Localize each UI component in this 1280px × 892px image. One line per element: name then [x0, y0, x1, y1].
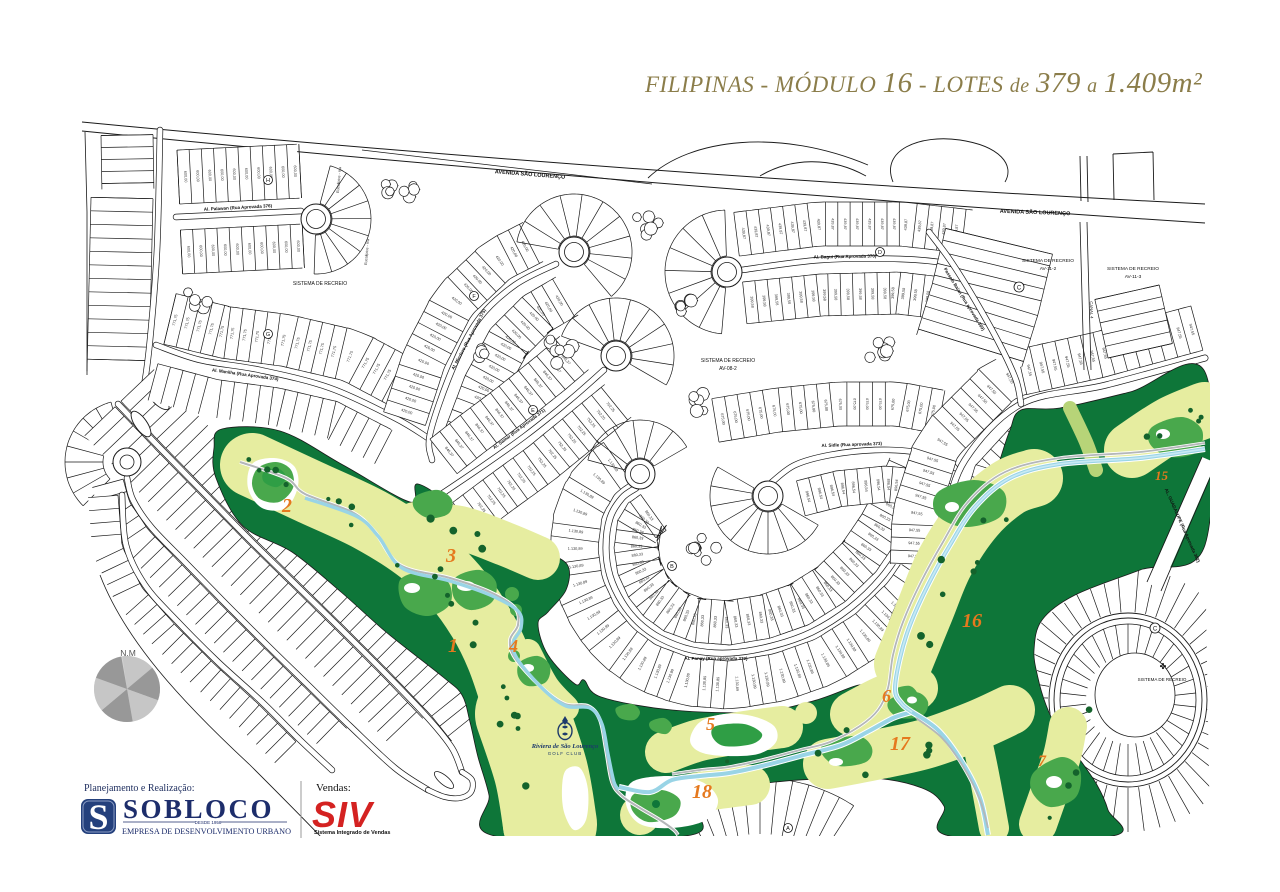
svg-text:3: 3: [445, 545, 456, 567]
svg-text:G: G: [266, 332, 270, 338]
svg-text:600,00: 600,00: [272, 242, 277, 254]
svg-text:S: S: [88, 797, 108, 837]
svg-text:600,00: 600,00: [199, 245, 204, 257]
svg-text:C: C: [1153, 627, 1158, 633]
svg-text:2: 2: [281, 495, 292, 517]
svg-text:439,87: 439,87: [880, 218, 884, 230]
svg-text:600,00: 600,00: [244, 168, 249, 180]
svg-text:675,00: 675,00: [878, 398, 882, 410]
svg-text:399,58: 399,58: [822, 289, 827, 301]
svg-text:439,87: 439,87: [831, 218, 835, 230]
svg-text:600,00: 600,00: [207, 170, 212, 182]
svg-text:DESDE 1958: DESDE 1958: [195, 820, 222, 825]
svg-text:675,00: 675,00: [838, 398, 843, 410]
svg-text:439,87: 439,87: [868, 218, 872, 230]
svg-text:600,00: 600,00: [256, 167, 261, 179]
svg-text:16: 16: [962, 610, 982, 632]
svg-text:A: A: [786, 826, 790, 832]
svg-text:439,87: 439,87: [816, 219, 821, 231]
svg-text:399,58: 399,58: [891, 287, 896, 299]
svg-text:SISTEMA DE RECREIO: SISTEMA DE RECREIO: [1107, 266, 1159, 272]
svg-text:399,58: 399,58: [846, 288, 850, 300]
svg-text:399,58: 399,58: [858, 288, 862, 300]
svg-text:600,00: 600,00: [211, 245, 216, 257]
svg-text:SIV: SIV: [312, 794, 375, 835]
svg-text:SISTEMA DE RECREIO: SISTEMA DE RECREIO: [293, 281, 347, 287]
svg-text:600,00: 600,00: [281, 166, 286, 178]
svg-text:SISTEMA DE RECREIO: SISTEMA DE RECREIO: [1138, 677, 1187, 682]
svg-text:600,00: 600,00: [223, 244, 228, 256]
svg-text:15: 15: [1155, 468, 1169, 483]
svg-text:947,55: 947,55: [908, 541, 920, 545]
svg-text:Planejamento e Realização:: Planejamento e Realização:: [84, 783, 195, 794]
svg-text:Vendas:: Vendas:: [316, 782, 351, 794]
svg-text:600,00: 600,00: [259, 242, 264, 254]
svg-text:399,58: 399,58: [883, 288, 887, 300]
svg-text:439,87: 439,87: [843, 218, 847, 230]
svg-text:600,00: 600,00: [247, 243, 252, 255]
svg-text:600,00: 600,00: [220, 169, 225, 181]
svg-text:947,55: 947,55: [909, 528, 921, 532]
svg-text:✤: ✤: [1160, 662, 1167, 671]
svg-text:1: 1: [448, 635, 458, 657]
svg-text:GOLF CLUB: GOLF CLUB: [548, 751, 583, 756]
svg-text:675,00: 675,00: [865, 398, 869, 410]
svg-text:4: 4: [508, 636, 518, 656]
svg-text:675,00: 675,00: [852, 398, 856, 410]
svg-text:600,00: 600,00: [284, 241, 289, 253]
svg-text:600,00: 600,00: [235, 243, 240, 255]
svg-text:600,00: 600,00: [293, 165, 298, 177]
svg-text:AV-08-2: AV-08-2: [719, 366, 737, 372]
svg-text:600,00: 600,00: [195, 170, 200, 182]
svg-text:Al. Panay (Rua aprovada 372): Al. Panay (Rua aprovada 372): [684, 656, 748, 661]
svg-text:860,33: 860,33: [631, 544, 643, 548]
svg-text:E: E: [531, 408, 535, 414]
svg-text:EMPRESA DE DESENVOLVIMENTO: EMPRESA DE DESENVOLVIMENTO URBANO: [122, 827, 291, 836]
svg-text:6: 6: [882, 686, 891, 706]
svg-text:AV-11-2: AV-11-2: [1040, 266, 1057, 272]
svg-text:399,58: 399,58: [833, 289, 837, 301]
svg-text:896,54: 896,54: [886, 479, 890, 491]
svg-text:600,00: 600,00: [296, 240, 301, 252]
svg-text:SISTEMA DE RECREIO: SISTEMA DE RECREIO: [1022, 258, 1074, 264]
svg-text:FILIPINAS - MÓDULO 16 - LOTES: FILIPINAS - MÓDULO 16 - LOTES de 379 a 1…: [644, 67, 1203, 99]
svg-text:1.130,89: 1.130,89: [735, 676, 740, 691]
svg-text:SISTEMA DE RECREIO: SISTEMA DE RECREIO: [701, 358, 755, 364]
svg-text:C: C: [1017, 286, 1022, 292]
svg-text:AV-11-3: AV-11-3: [1125, 274, 1142, 280]
svg-text:Riviera de São Lourenço: Riviera de São Lourenço: [531, 743, 599, 750]
svg-text:7: 7: [1038, 753, 1047, 770]
svg-text:5: 5: [706, 714, 715, 734]
svg-text:399,58: 399,58: [870, 288, 874, 300]
svg-text:1.130,89: 1.130,89: [568, 547, 583, 551]
svg-text:Sistema Integrado de Vendas: Sistema Integrado de Vendas: [314, 830, 390, 836]
svg-text:B: B: [670, 564, 674, 570]
svg-text:439,87: 439,87: [904, 219, 909, 231]
svg-text:600,00: 600,00: [186, 246, 191, 258]
svg-text:18: 18: [692, 781, 712, 803]
svg-text:600,00: 600,00: [232, 168, 237, 180]
svg-text:H: H: [266, 178, 270, 184]
svg-text:D: D: [878, 250, 882, 256]
svg-text:860,33: 860,33: [724, 617, 729, 629]
svg-text:439,87: 439,87: [855, 218, 859, 230]
svg-text:CANAL 4: CANAL 4: [1089, 301, 1095, 319]
svg-text:17: 17: [890, 733, 911, 755]
svg-text:439,87: 439,87: [892, 218, 896, 230]
svg-text:600,00: 600,00: [183, 171, 188, 183]
